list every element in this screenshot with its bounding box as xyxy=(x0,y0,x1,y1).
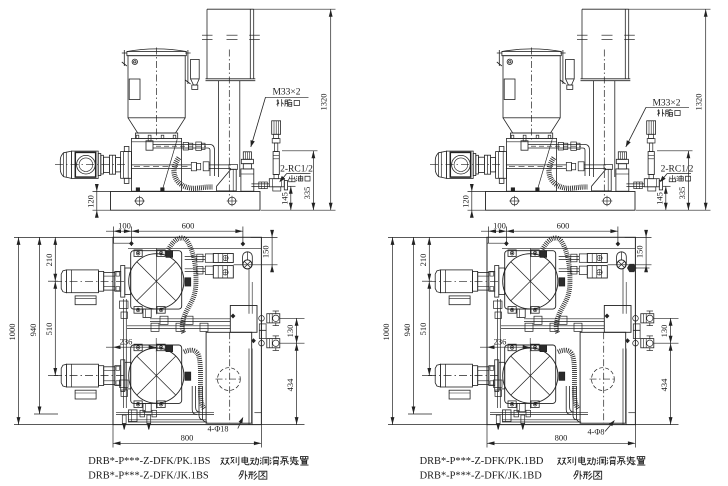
svg-text:1320: 1320 xyxy=(318,94,328,111)
svg-text:150: 150 xyxy=(261,245,271,258)
svg-text:236: 236 xyxy=(120,336,133,346)
svg-text:940: 940 xyxy=(28,324,38,337)
svg-text:DRB*-P***-Z-DFK/JK.1BS: DRB*-P***-Z-DFK/JK.1BS xyxy=(88,471,209,482)
svg-text:145: 145 xyxy=(279,192,289,205)
svg-text:M33×2: M33×2 xyxy=(272,88,300,98)
svg-text:434: 434 xyxy=(285,378,295,392)
svg-text:130: 130 xyxy=(285,325,295,338)
svg-text:335: 335 xyxy=(302,187,312,200)
svg-text:4-Φ18: 4-Φ18 xyxy=(208,425,229,434)
svg-text:DRB*-P***-Z-DFK/JK.1BD: DRB*-P***-Z-DFK/JK.1BD xyxy=(420,471,543,482)
svg-text:2-RC1/2: 2-RC1/2 xyxy=(280,165,313,175)
svg-text:DRB*-P***-Z-DFK/PK.1BS: DRB*-P***-Z-DFK/PK.1BS xyxy=(88,456,210,467)
svg-text:120: 120 xyxy=(86,195,96,208)
svg-text:1000: 1000 xyxy=(7,324,17,341)
svg-text:600: 600 xyxy=(182,220,195,230)
svg-text:2-RC1/2: 2-RC1/2 xyxy=(661,165,694,175)
svg-text:510: 510 xyxy=(44,323,54,336)
svg-text:210: 210 xyxy=(44,254,54,267)
svg-text:4-Φ8: 4-Φ8 xyxy=(588,428,605,437)
svg-text:100: 100 xyxy=(118,220,131,230)
svg-text:800: 800 xyxy=(181,432,194,442)
svg-text:DRB*-P***-Z-DFK/PK.1BD: DRB*-P***-Z-DFK/PK.1BD xyxy=(420,456,544,467)
